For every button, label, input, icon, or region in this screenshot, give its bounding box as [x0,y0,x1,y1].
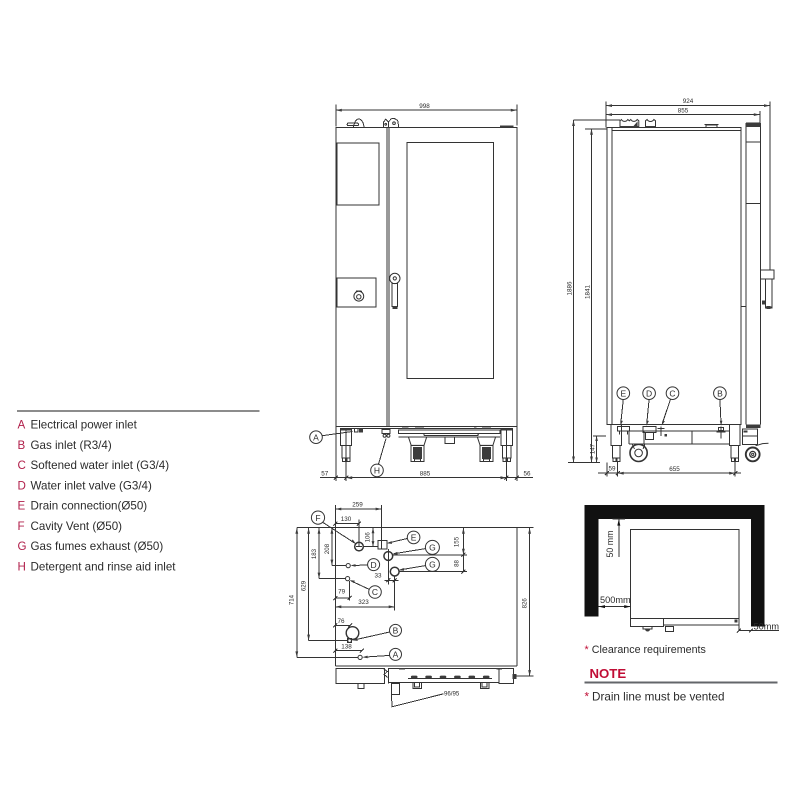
svg-text:E: E [411,533,417,543]
svg-text:Detergent and rinse aid inlet: Detergent and rinse aid inlet [31,560,177,573]
svg-text:500mm: 500mm [600,595,631,605]
svg-text:C: C [372,587,378,597]
svg-text:Softened water inlet (G3/4): Softened water inlet (G3/4) [31,459,170,472]
svg-text:H: H [374,466,380,476]
svg-text:655: 655 [669,466,680,473]
svg-text:1841: 1841 [584,285,591,300]
svg-text:629: 629 [300,580,307,591]
svg-text:924: 924 [683,98,694,105]
svg-text:96/95: 96/95 [444,691,460,698]
svg-text:147: 147 [590,443,597,454]
svg-text:50mm: 50mm [754,621,780,631]
svg-text:A: A [393,650,399,660]
svg-text:B: B [393,626,399,636]
svg-text:F: F [315,513,320,523]
svg-text:E: E [620,388,626,398]
svg-text:Water inlet valve (G3/4): Water inlet valve (G3/4) [31,479,152,492]
svg-text:259: 259 [352,502,363,509]
svg-text:G: G [429,560,436,570]
svg-text:C: C [18,459,26,472]
svg-text:D: D [646,388,652,398]
svg-text:C: C [669,388,675,398]
svg-text:826: 826 [522,598,529,609]
svg-text:D: D [18,479,26,492]
svg-text:106: 106 [365,532,372,543]
svg-text:*: * [585,644,589,656]
svg-text:208: 208 [324,543,331,554]
svg-text:59: 59 [608,466,616,473]
svg-text:Drain connection(Ø50): Drain connection(Ø50) [31,500,148,513]
svg-text:57: 57 [321,470,329,477]
svg-text:D: D [371,560,377,570]
svg-text:50 mm: 50 mm [605,531,615,558]
svg-text:A: A [313,432,319,442]
svg-text:155: 155 [453,536,460,547]
svg-text:A: A [18,419,26,432]
svg-text:Gas fumes exhaust (Ø50): Gas fumes exhaust (Ø50) [31,540,164,553]
svg-text:998: 998 [419,103,430,110]
svg-text:B: B [18,439,26,452]
svg-text:56: 56 [523,470,531,477]
svg-text:1886: 1886 [567,281,574,296]
svg-text:79: 79 [338,589,346,596]
svg-text:Electrical power inlet: Electrical power inlet [31,419,138,432]
svg-text:183: 183 [311,548,318,559]
svg-text:E: E [18,500,26,513]
svg-text:88: 88 [453,560,460,567]
svg-text:130: 130 [341,516,352,523]
svg-text:Clearance requirements: Clearance requirements [592,644,706,656]
svg-text:Gas inlet (R3/4): Gas inlet (R3/4) [31,439,112,452]
svg-text:Cavity Vent (Ø50): Cavity Vent (Ø50) [31,520,123,533]
svg-text:G: G [18,540,27,553]
svg-text:H: H [18,560,26,573]
svg-text:B: B [717,388,723,398]
svg-text:G: G [429,543,436,553]
svg-text:323: 323 [358,599,369,606]
svg-text:F: F [18,520,25,533]
svg-text:NOTE: NOTE [590,666,627,681]
svg-text:138: 138 [341,643,352,650]
svg-text:*: * [585,690,590,703]
svg-text:33: 33 [374,573,382,580]
svg-text:885: 885 [420,470,431,477]
svg-text:714: 714 [289,594,296,605]
svg-text:855: 855 [678,107,689,114]
svg-text:76: 76 [337,618,345,625]
svg-text:Drain line must be vented: Drain line must be vented [592,690,725,703]
